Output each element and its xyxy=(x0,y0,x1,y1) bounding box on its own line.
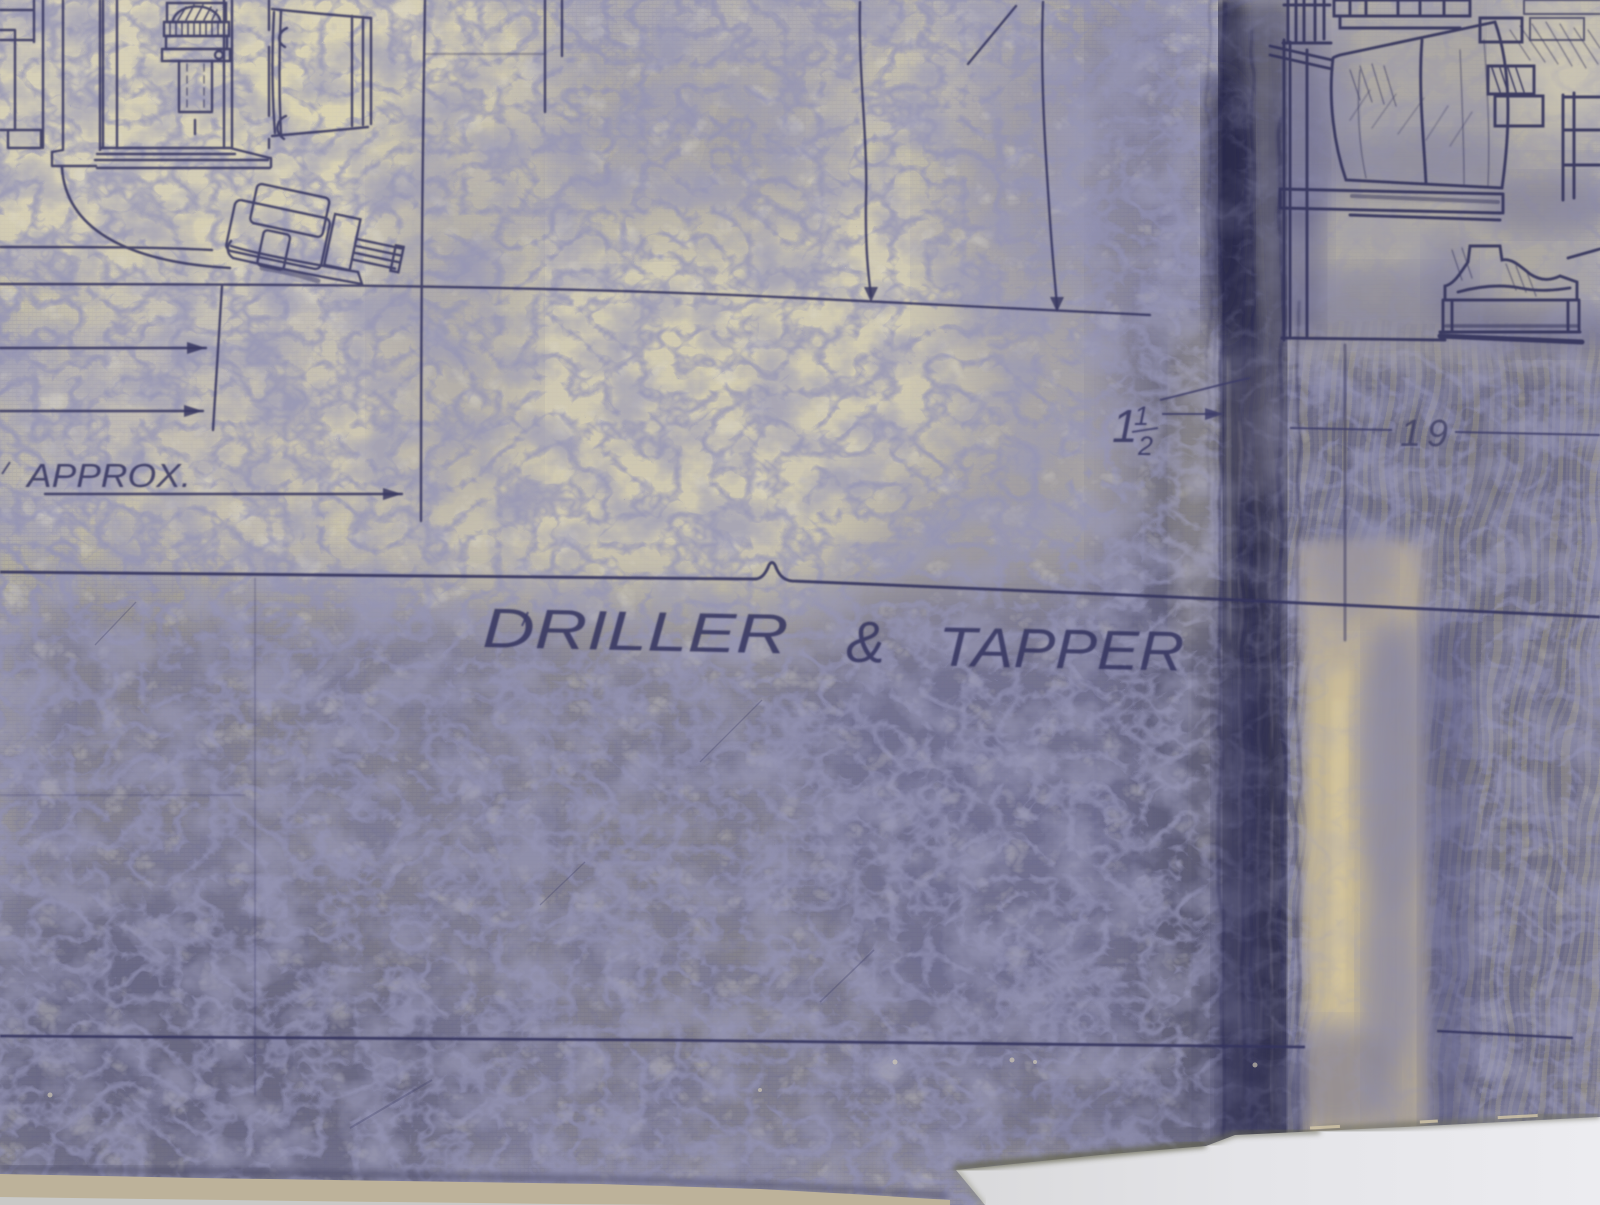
svg-text:&: & xyxy=(846,610,886,676)
svg-text:2: 2 xyxy=(1137,431,1153,461)
svg-text:APPROX.: APPROX. xyxy=(25,457,191,494)
svg-text:TAPPER: TAPPER xyxy=(938,615,1185,683)
svg-text:DRILLER: DRILLER xyxy=(482,596,789,665)
svg-text:1: 1 xyxy=(1134,401,1149,431)
